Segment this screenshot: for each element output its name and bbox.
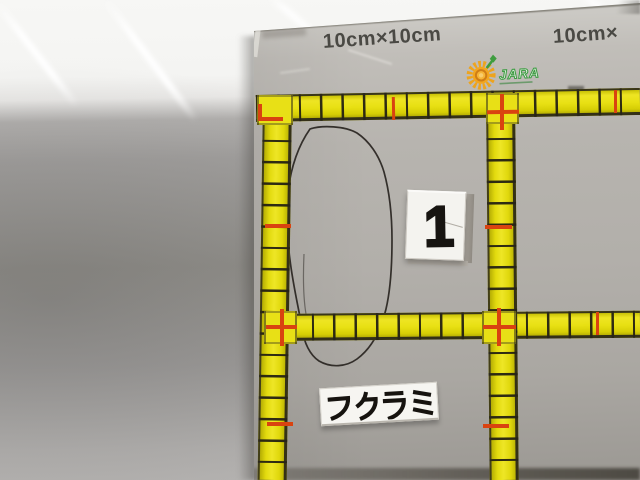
calibration-cross bbox=[266, 325, 297, 329]
damage-label-katakana bbox=[326, 387, 434, 423]
calibration-corner-mark bbox=[258, 117, 283, 121]
calibration-red-tick bbox=[392, 97, 395, 120]
ruler-strip-center bbox=[486, 95, 519, 480]
card-face: 1 bbox=[405, 190, 466, 261]
photo: 10cm×10cm 10cm× JARA bbox=[0, 0, 640, 480]
calibration-red-tick bbox=[614, 90, 617, 113]
evidence-number-card: 1 bbox=[405, 190, 478, 268]
damage-type-label: フクラミ bbox=[319, 382, 439, 427]
calibration-red-tick bbox=[485, 225, 512, 229]
pen-retrace-line bbox=[303, 254, 306, 314]
calibration-red-tick bbox=[267, 422, 293, 426]
ruler-intersection-patch bbox=[257, 95, 293, 125]
calibration-cross bbox=[483, 325, 516, 329]
calibration-red-tick bbox=[265, 224, 291, 228]
calibration-red-tick bbox=[596, 312, 599, 335]
damage-type-text: フクラミ bbox=[320, 389, 321, 390]
calibration-red-tick bbox=[483, 424, 509, 428]
marker-number: 1 bbox=[417, 195, 462, 260]
calibration-cross bbox=[487, 110, 519, 114]
ruler-strip-middle bbox=[269, 311, 640, 341]
